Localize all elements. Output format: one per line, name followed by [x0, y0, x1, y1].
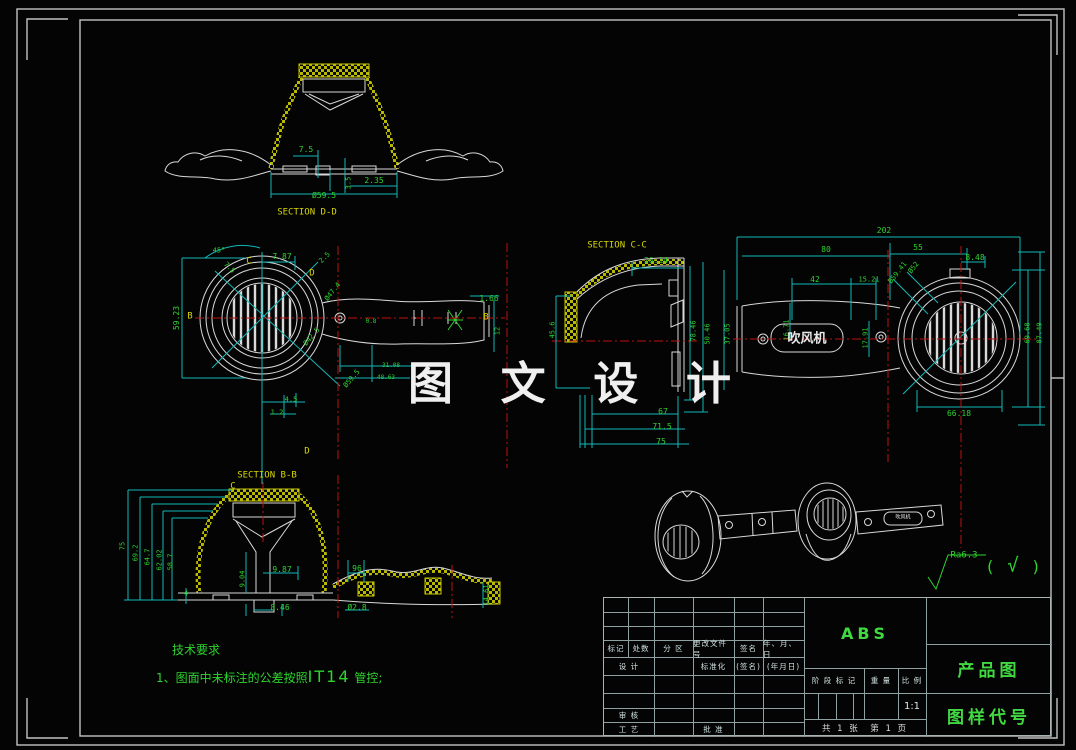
dim: 26.14	[644, 257, 668, 265]
dim: 71.5	[652, 423, 671, 431]
tb-review: 审 核	[604, 708, 654, 722]
tb-standardization: 标准化	[693, 657, 734, 675]
dim: Ø47.4	[324, 282, 342, 303]
cad-drawing-sheet: 7.53.52.35Ø59.5SECTION D-D45°7.57.87C2.5…	[0, 0, 1076, 750]
dim: 69.68	[1025, 322, 1032, 343]
dim: 80	[821, 246, 831, 254]
dim: 37.05	[725, 323, 732, 344]
dim: 96	[352, 565, 362, 573]
tb-approve: 批 准	[693, 722, 734, 737]
dim: 0.8	[366, 319, 377, 325]
dim: Ø42.5	[303, 327, 322, 348]
tb-date: (年月日)	[763, 657, 804, 675]
dim: 62.02	[157, 549, 164, 570]
dim: 9.87	[272, 566, 291, 574]
dim: 42	[810, 276, 820, 284]
tb-header-count: 处数	[628, 640, 654, 657]
surface-finish-ra: Ra6.3	[950, 552, 977, 561]
tb-sign: (签名)	[734, 657, 763, 675]
dim: 75	[656, 438, 666, 446]
tb-sheet-info: 共 1 张 第 1 页	[804, 719, 926, 737]
dim: 15.21	[858, 277, 879, 284]
dim: 17.91	[863, 327, 870, 348]
surface-finish-check: √	[1007, 557, 1018, 576]
product-label: 吹风机	[787, 333, 826, 346]
dim: Ø59.41	[887, 261, 908, 285]
dim: Ø2.8	[347, 604, 366, 612]
cut-label: B	[187, 313, 192, 322]
dim: 58.7	[168, 554, 175, 571]
title-block: 标记 处数 分 区 更改文件号 签名 年、月、日 设 计 标准化 (签名) (年…	[603, 597, 1051, 736]
cut-label: C	[230, 483, 235, 492]
tb-scale-value: 1:1	[898, 693, 926, 719]
tech-req-item-code: IT14	[308, 667, 351, 686]
tb-weight: 重 量	[864, 668, 898, 693]
dim: 45.6	[550, 322, 557, 339]
tb-header-date: 年、月、日	[763, 640, 804, 657]
section-label-cc: SECTION C-C	[587, 242, 647, 251]
dim: 55	[913, 244, 923, 252]
dim: 59.23	[173, 306, 181, 330]
tb-header-change-file: 更改文件号	[693, 640, 734, 657]
tb-scale-label: 比 例	[898, 668, 926, 693]
cut-label: D	[309, 270, 314, 279]
tb-header-mark: 标记	[604, 640, 628, 657]
tb-process: 工 艺	[604, 722, 654, 737]
cut-label: C	[246, 258, 251, 267]
dim: Ø59.5	[343, 369, 362, 390]
dim: 45°	[213, 248, 226, 255]
cut-label: B	[483, 314, 488, 323]
dim: 7.5	[222, 261, 236, 275]
dim: 202	[877, 227, 891, 235]
dim: 48.63	[377, 375, 395, 381]
dim: 7.87	[272, 253, 291, 261]
dim: 8.48	[965, 254, 984, 262]
dim: 8.46	[270, 604, 289, 612]
tb-drawing-code: 图样代号	[926, 693, 1052, 737]
dim: 1.66	[479, 295, 498, 303]
tech-req-item-pre: 1、图面中未标注的公差按照	[156, 671, 308, 685]
dim: 4.5	[285, 397, 298, 404]
dim: 64.7	[145, 549, 152, 566]
surface-finish-paren-close: )	[1031, 559, 1041, 575]
dim: 1.2	[271, 410, 284, 417]
tech-req-item-post: 管控;	[351, 671, 383, 685]
cut-label: D	[304, 448, 309, 457]
product-label-small: 吹风机	[895, 516, 910, 521]
tb-header-zone: 分 区	[654, 640, 693, 657]
section-label-bb: SECTION B-B	[237, 472, 297, 481]
tb-header-signature: 签名	[734, 640, 763, 657]
dim: 12	[495, 327, 502, 335]
dim: 69.2	[133, 545, 140, 562]
dim: 2.35	[364, 177, 383, 185]
surface-finish-paren-open: (	[985, 559, 995, 575]
dim: 2.5	[318, 251, 332, 265]
dim: 9.04	[240, 571, 247, 588]
dim: 31.08	[382, 363, 400, 369]
tb-stage-mark: 阶 段 标 记	[804, 668, 864, 693]
dim: 7.5	[299, 146, 313, 154]
watermark-text: 图 文 设 计	[408, 347, 747, 412]
dim: Ø52	[907, 261, 920, 275]
dim: 3.5	[346, 177, 353, 190]
tb-design: 设 计	[604, 657, 654, 675]
dim: 50.46	[705, 323, 712, 344]
tb-material: ABS	[804, 598, 926, 668]
tech-req-title: 技术要求	[172, 641, 382, 658]
dim: 75	[120, 542, 127, 550]
dim: 66.18	[947, 410, 971, 418]
dim: Ø59.5	[312, 192, 336, 200]
section-label-dd: SECTION D-D	[277, 209, 337, 218]
dim: 78.46	[691, 320, 698, 341]
technical-requirements: 技术要求 1、图面中未标注的公差按照IT14 管控;	[172, 641, 382, 686]
dim: 4	[184, 591, 188, 598]
dim: 14.61	[484, 584, 491, 605]
dim: 87.49	[1037, 322, 1044, 343]
tb-drawing-name: 产品图	[926, 644, 1052, 693]
